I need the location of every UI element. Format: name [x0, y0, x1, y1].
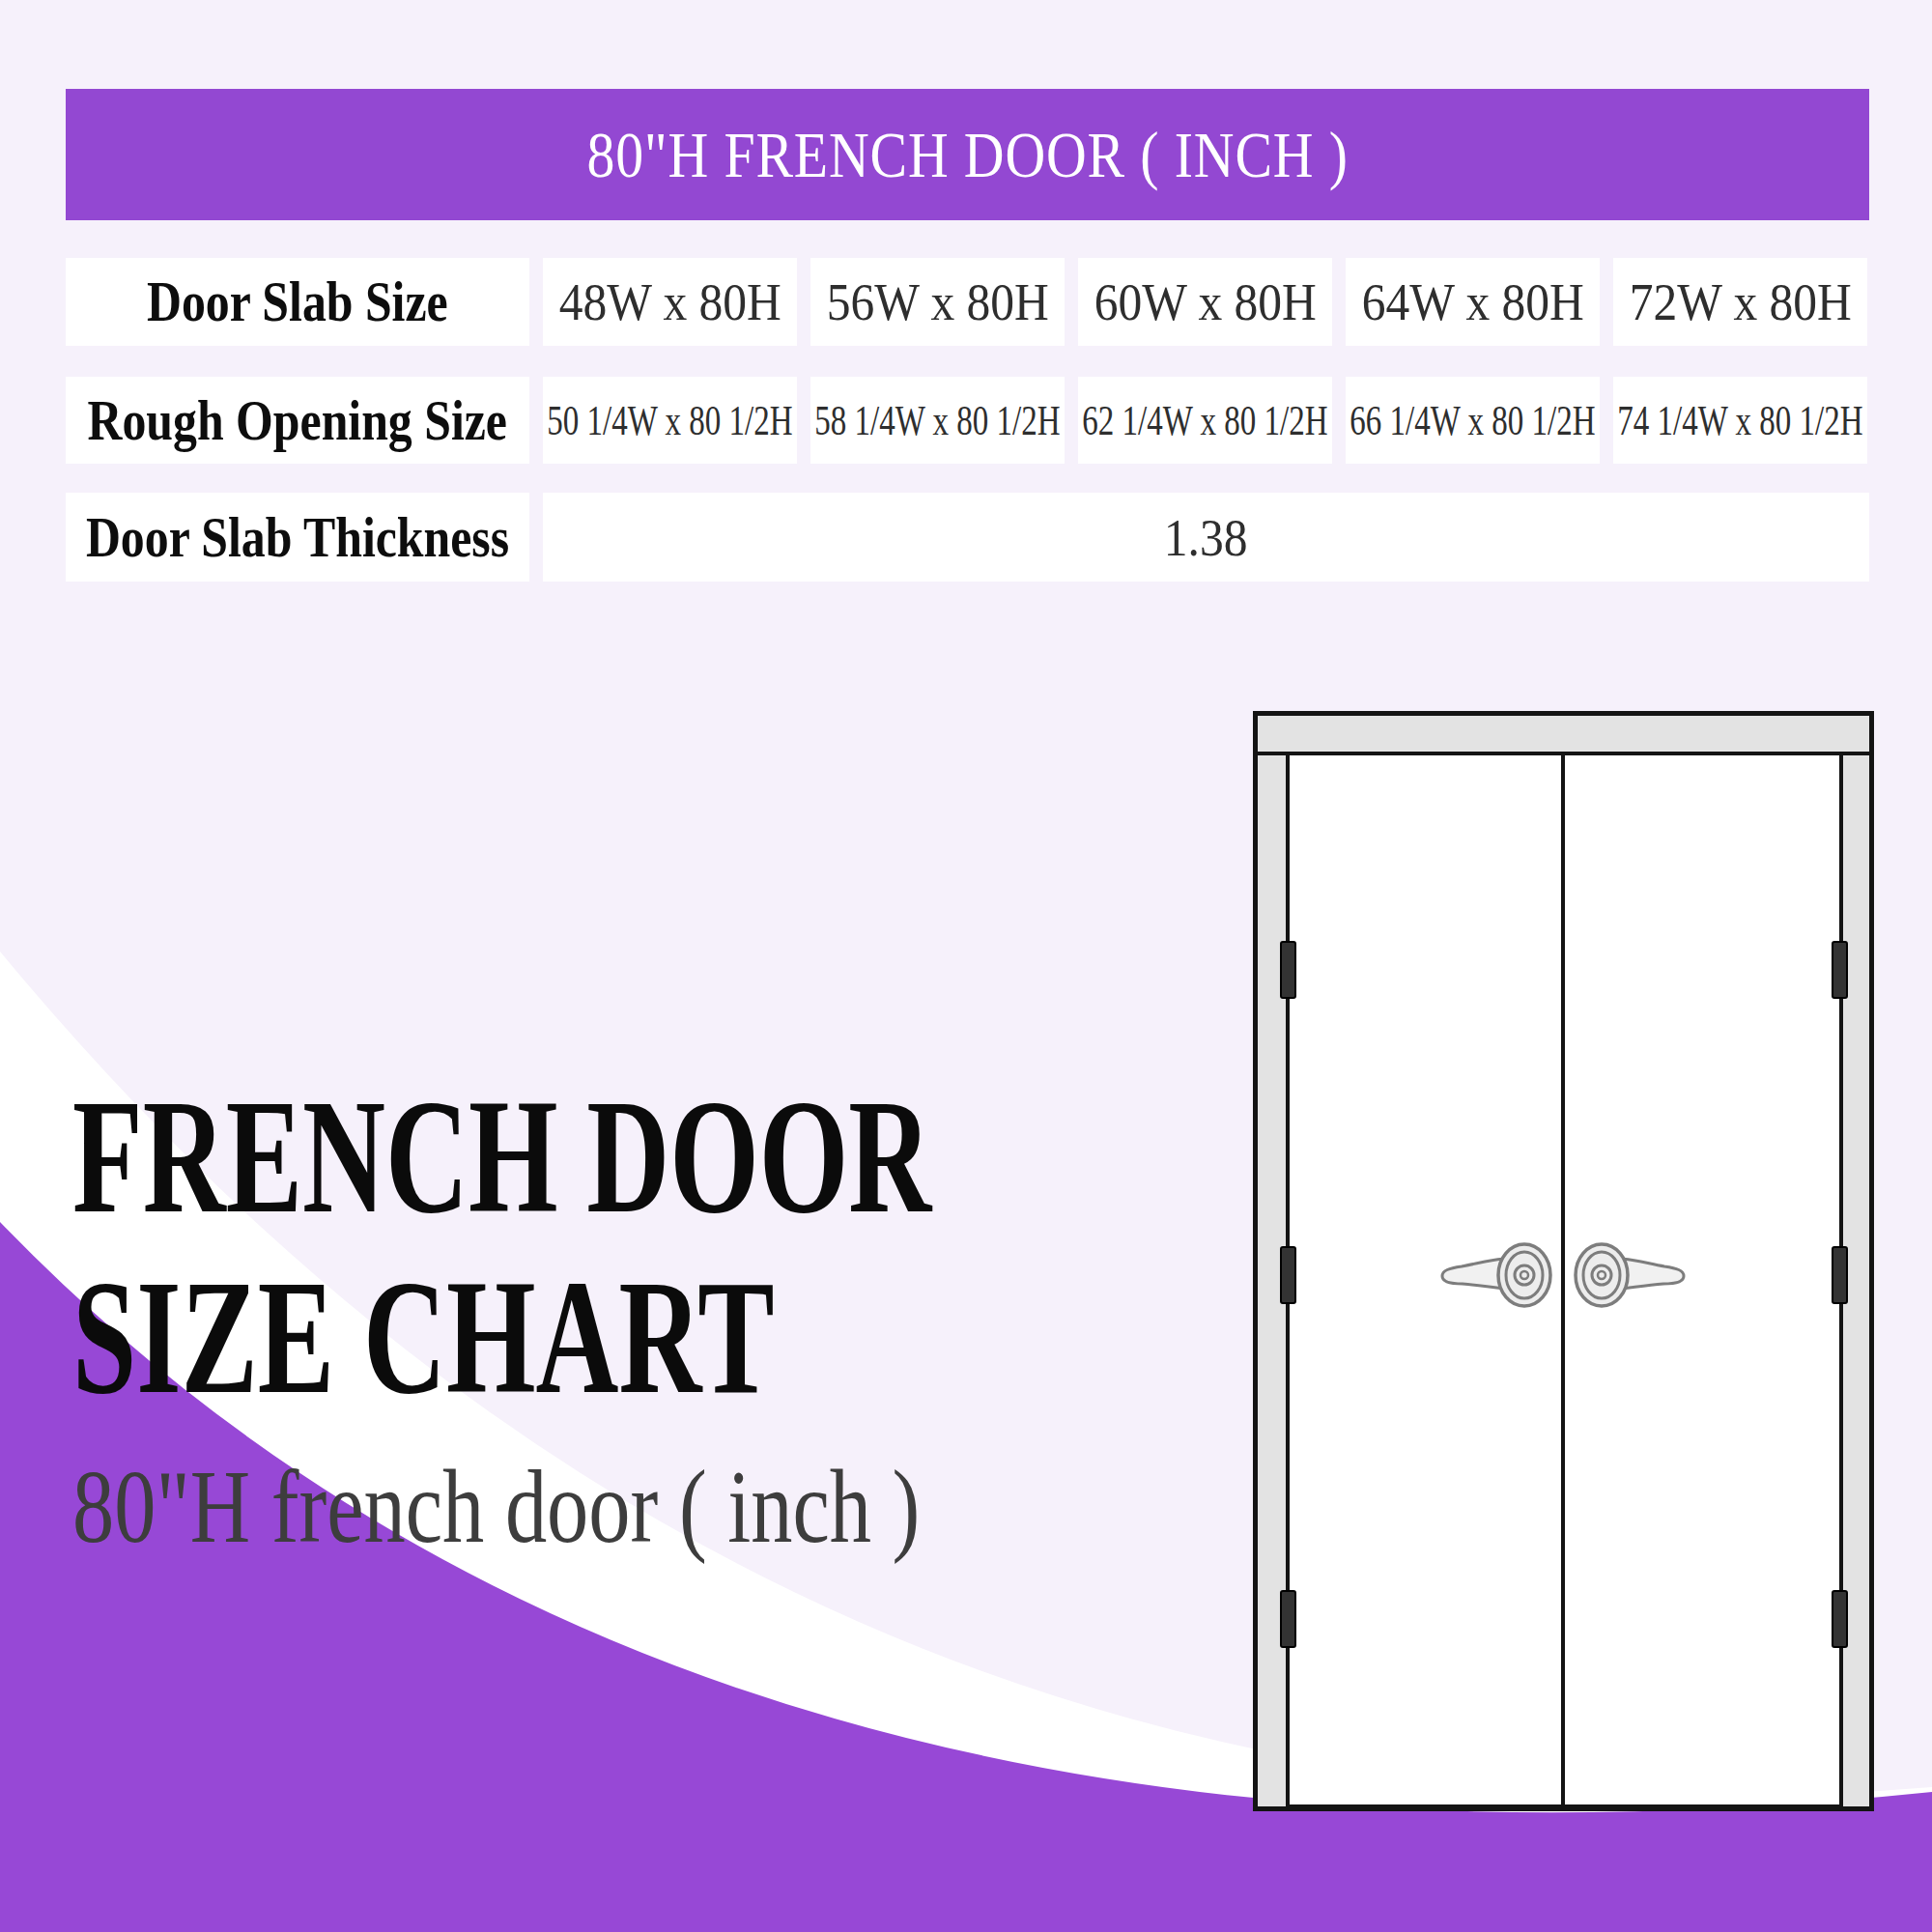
table-cell: 72W x 80H	[1613, 258, 1867, 346]
cell-value: 58 1/4W x 80 1/2H	[814, 396, 1060, 445]
row-header-label: Rough Opening Size	[88, 387, 507, 454]
page-subtitle: 80"H french door ( inch )	[72, 1447, 1132, 1567]
row-header-cell: Door Slab Thickness	[66, 493, 529, 582]
table-cell: 58 1/4W x 80 1/2H	[810, 377, 1065, 464]
table-cell: 64W x 80H	[1346, 258, 1600, 346]
table-row-door-slab-thickness: Door Slab Thickness 1.38	[66, 493, 1869, 582]
row-header-cell: Rough Opening Size	[66, 377, 529, 464]
cell-value: 48W x 80H	[558, 271, 781, 332]
table-row-rough-opening-size: Rough Opening Size 50 1/4W x 80 1/2H 58 …	[66, 377, 1867, 464]
hinge-icon	[1281, 942, 1295, 998]
banner-title: 80"H FRENCH DOOR ( INCH )	[586, 117, 1348, 193]
cell-value: 64W x 80H	[1361, 271, 1583, 332]
door-diagram	[1253, 711, 1874, 1811]
hinge-icon	[1833, 1591, 1847, 1647]
cell-value: 1.38	[1164, 507, 1248, 568]
banner: 80"H FRENCH DOOR ( INCH )	[66, 89, 1869, 220]
table-cell-merged: 1.38	[543, 493, 1869, 582]
cell-value: 56W x 80H	[826, 271, 1048, 332]
infographic-canvas: 80"H FRENCH DOOR ( INCH ) Door Slab Size…	[0, 0, 1932, 1932]
table-cell: 74 1/4W x 80 1/2H	[1613, 377, 1867, 464]
cell-value: 74 1/4W x 80 1/2H	[1617, 396, 1862, 445]
table-cell: 50 1/4W x 80 1/2H	[543, 377, 797, 464]
table-cell: 56W x 80H	[810, 258, 1065, 346]
table-row-door-slab-size: Door Slab Size 48W x 80H 56W x 80H 60W x…	[66, 258, 1867, 346]
row-header-label: Door Slab Thickness	[86, 504, 509, 571]
hinge-icon	[1281, 1247, 1295, 1303]
cell-value: 72W x 80H	[1629, 271, 1851, 332]
hinge-icon	[1833, 942, 1847, 998]
row-header-cell: Door Slab Size	[66, 258, 529, 346]
hinge-icon	[1833, 1247, 1847, 1303]
table-cell: 62 1/4W x 80 1/2H	[1078, 377, 1332, 464]
page-subtitle-text: 80"H french door ( inch )	[72, 1447, 920, 1567]
cell-value: 62 1/4W x 80 1/2H	[1082, 396, 1327, 445]
page-title-line2: SIZE CHART	[72, 1247, 931, 1428]
cell-value: 66 1/4W x 80 1/2H	[1350, 396, 1595, 445]
table-cell: 60W x 80H	[1078, 258, 1332, 346]
hinge-icon	[1281, 1591, 1295, 1647]
page-title-line1: FRENCH DOOR	[72, 1066, 931, 1247]
row-header-label: Door Slab Size	[147, 269, 448, 335]
page-title: FRENCH DOOR SIZE CHART	[72, 1066, 1299, 1428]
french-door-illustration	[1253, 711, 1874, 1811]
cell-value: 50 1/4W x 80 1/2H	[547, 396, 792, 445]
table-cell: 48W x 80H	[543, 258, 797, 346]
cell-value: 60W x 80H	[1094, 271, 1316, 332]
table-cell: 66 1/4W x 80 1/2H	[1346, 377, 1600, 464]
